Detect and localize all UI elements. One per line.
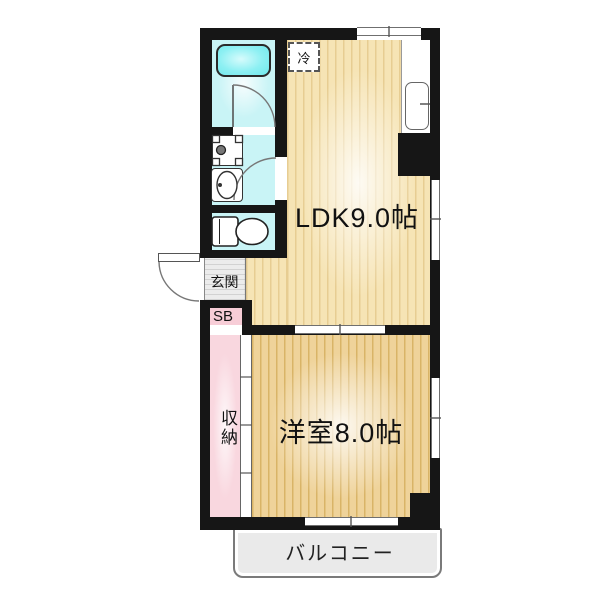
wall-top-right (421, 28, 440, 40)
wall-left-upper (200, 28, 212, 257)
floor-glow (301, 69, 415, 298)
window-top (357, 27, 421, 36)
floor-plan: 冷 LDK9 (0, 0, 600, 600)
kitchen-sink (405, 82, 429, 130)
balcony-door (305, 517, 398, 526)
ldk-floor-entry-strip (246, 258, 287, 326)
sliding-partition-ldk-western (295, 325, 385, 334)
entrance-door-swing-arc (159, 262, 199, 301)
wall-left-lower (200, 300, 210, 530)
ldk-room-label: LDK9.0帖 (262, 196, 452, 235)
storage-label: 収納 (210, 393, 240, 463)
kitchen-counter-block (398, 133, 440, 176)
wall-bath-washroom (200, 127, 233, 135)
pillar-bottom-right (410, 493, 438, 520)
bathtub (216, 44, 271, 77)
entrance-label: 玄関 (203, 272, 246, 292)
western-room-label: 洋室8.0帖 (246, 411, 436, 450)
entrance-door (158, 253, 200, 262)
vanity-sink (211, 168, 243, 202)
washing-machine-pan (212, 135, 243, 166)
wall-toilet-bottom (200, 250, 287, 258)
balcony-label: バルコニー (240, 537, 440, 566)
shoe-box-label: SB (203, 308, 243, 325)
wall-plumbing-column-upper (275, 28, 287, 157)
refrigerator-space: 冷 (288, 42, 320, 72)
refrigerator-label: 冷 (297, 48, 310, 67)
